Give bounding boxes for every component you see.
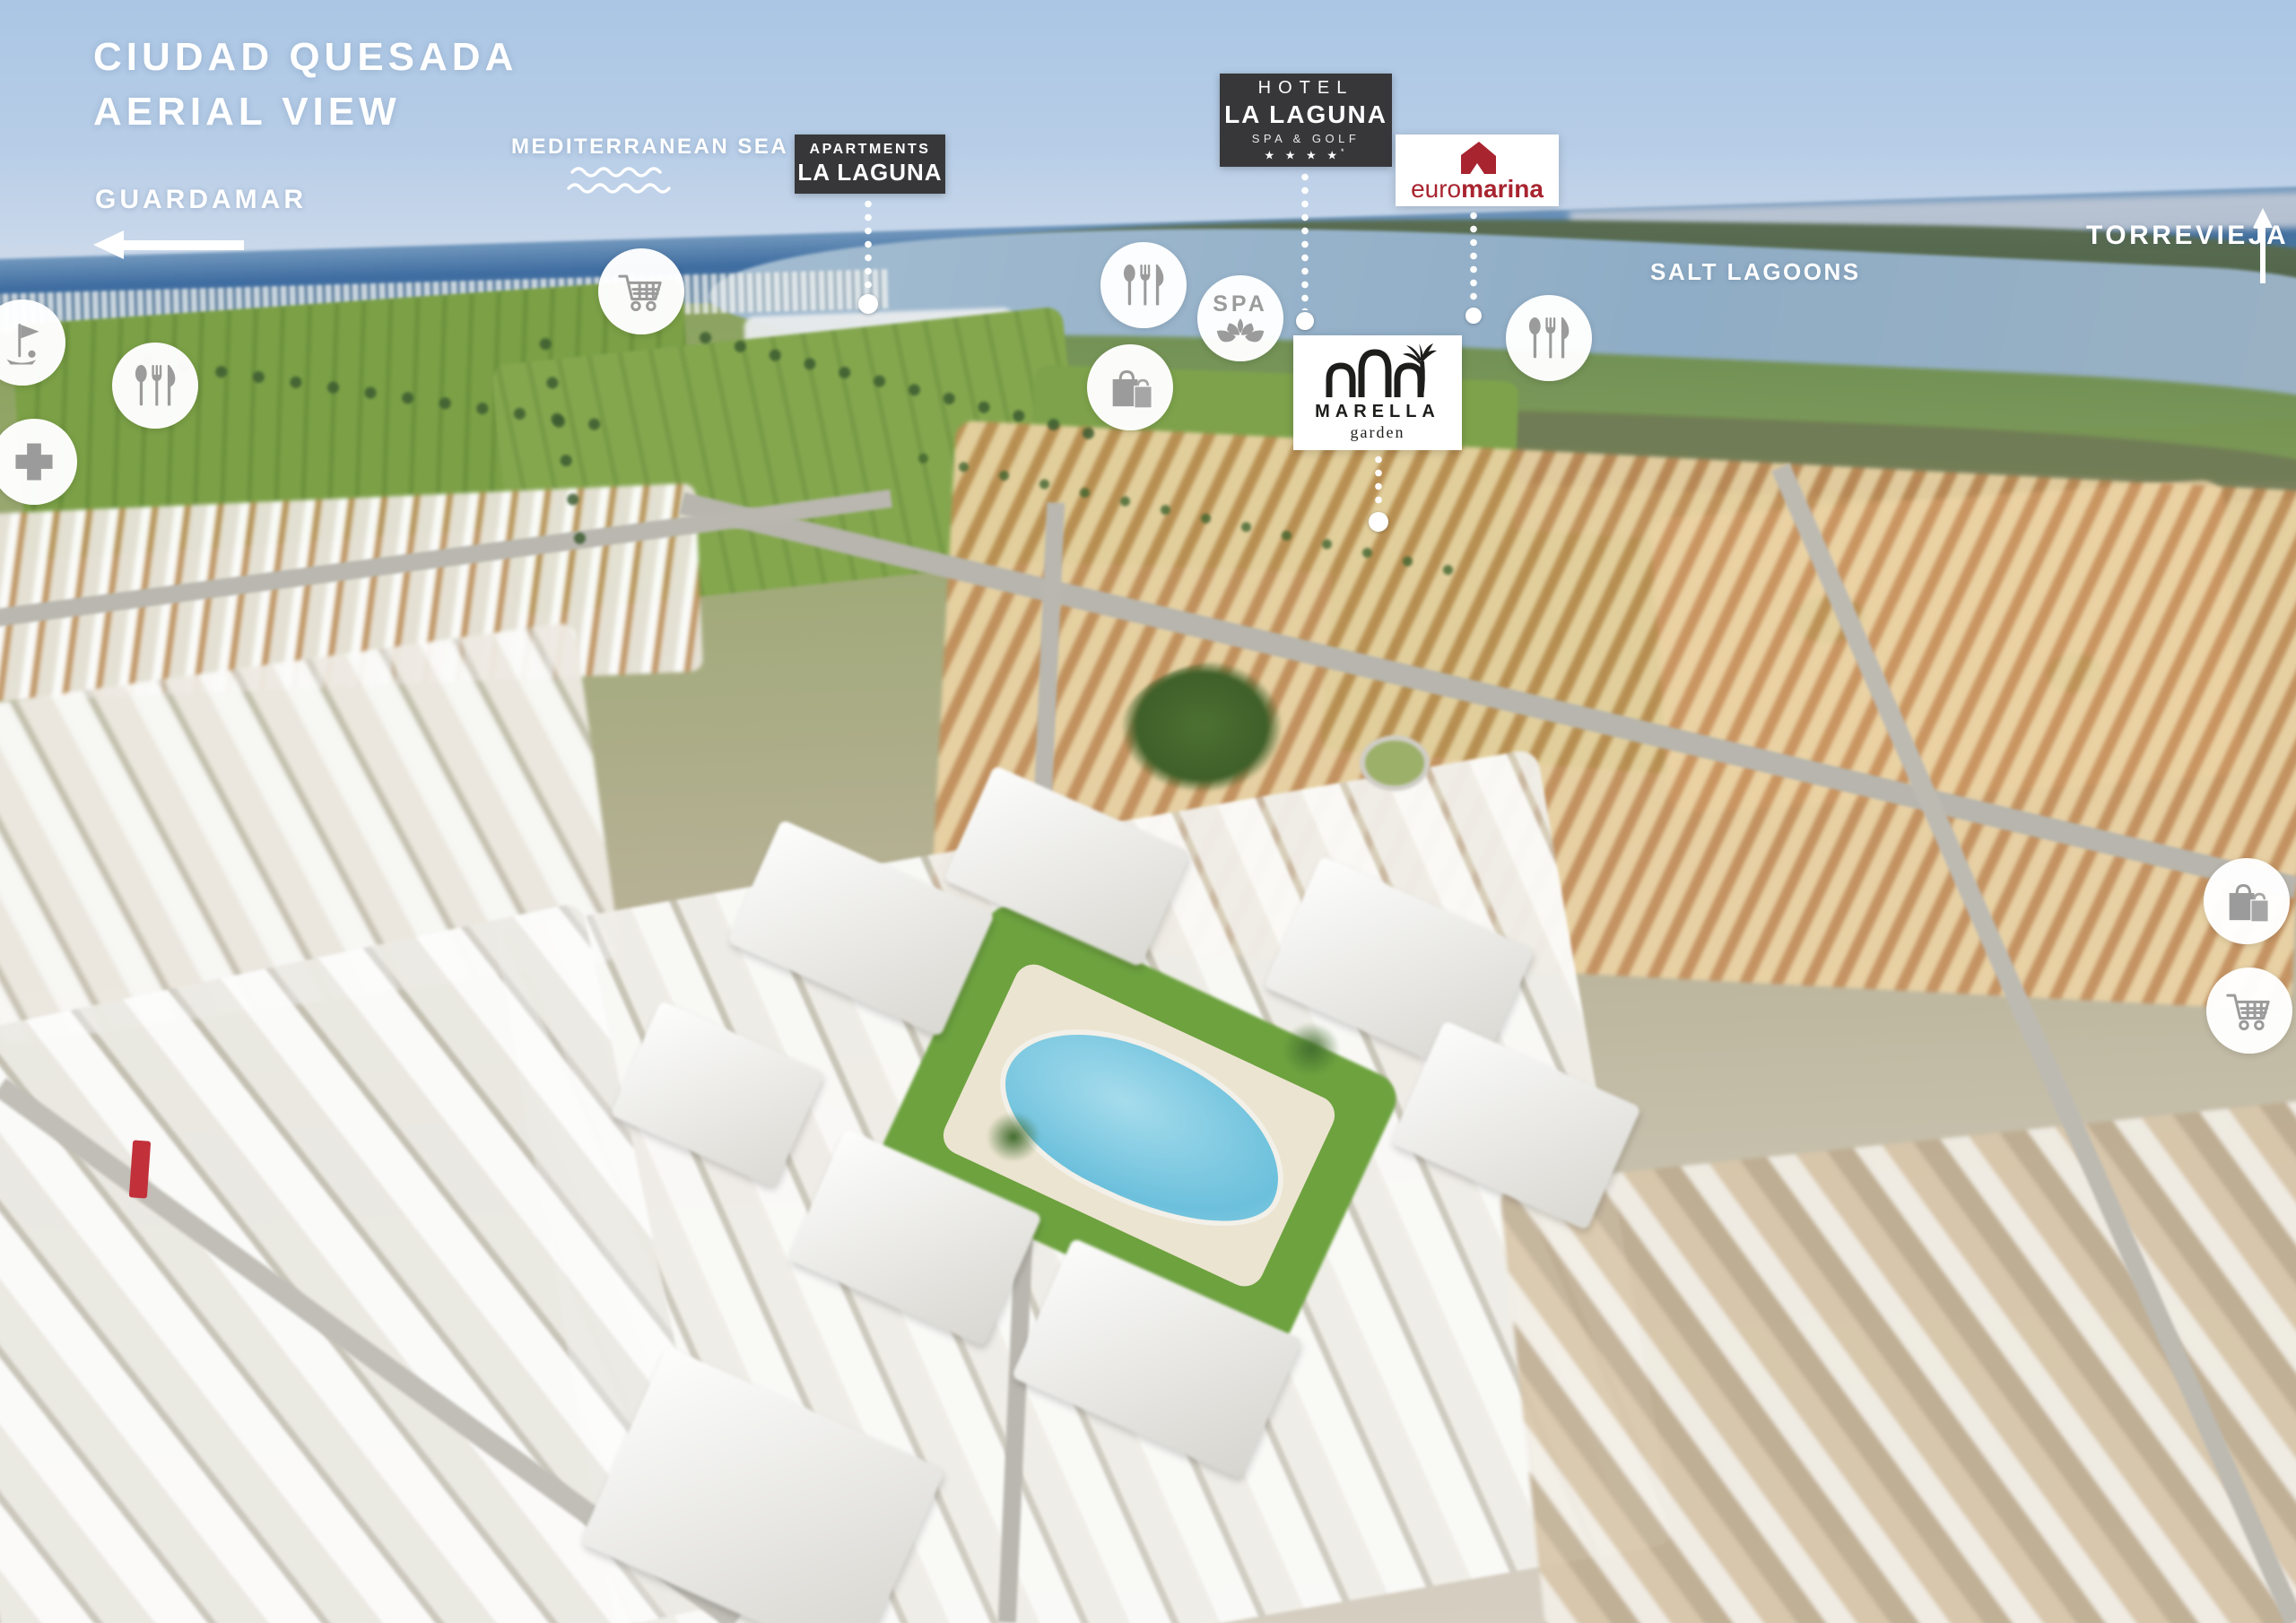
hotel-badge-line2: LA LAGUNA [1224,100,1387,129]
photo-pool-palms-2 [1283,1022,1340,1076]
page-title-line1: CIUDAD QUESADA [93,30,517,85]
apartments-location-dot [858,294,878,314]
lotus-icon [1215,318,1265,345]
marella-tagline: garden [1351,423,1405,442]
hotel-dotted-connector [1300,170,1309,310]
salt-lagoons-label: SALT LAGOONS [1650,258,1861,286]
shopping-bags-icon-east [2204,858,2290,944]
guardamar-arrowhead-icon [93,230,124,259]
apartments-badge-line2: LA LAGUNA [797,159,942,187]
shopping-bags-icon-center [1087,344,1173,430]
waves-icon [567,163,673,199]
mediterranean-sea-label: MEDITERRANEAN SEA [511,135,788,160]
shopping-cart-icon-west [598,248,684,334]
spa-icon-label: SPA [1213,291,1268,317]
hotel-stars-note: * [1341,147,1348,156]
photo-roundabout [1360,735,1430,791]
euromarina-wordmark: euromarina [1411,177,1544,202]
restaurant-icon-west [112,343,198,429]
apartments-la-laguna-badge: APARTMENTS LA LAGUNA [795,135,945,194]
marella-garden-logo: MARELLA garden [1293,335,1462,450]
apartments-dotted-connector [864,197,873,296]
page-title: CIUDAD QUESADA AERIAL VIEW [93,30,517,139]
euromarina-suffix: marina [1461,175,1544,203]
euromarina-dotted-connector [1469,209,1478,304]
page-title-line2: AERIAL VIEW [93,85,517,140]
marella-location-dot [1369,512,1388,532]
hotel-stars: ★ ★ ★ ★ [1265,148,1341,161]
hotel-badge-line3: SPA & GOLF [1252,132,1361,145]
shopping-cart-icon-east [2206,968,2292,1054]
spa-icon: SPA [1197,275,1283,361]
aerial-view-poster: CIUDAD QUESADA AERIAL VIEW GUARDAMAR MED… [0,0,2296,1623]
restaurant-icon-east [1506,295,1592,381]
marella-dotted-connector [1374,453,1383,510]
spa-icon-inner: SPA [1213,291,1268,345]
euromarina-logo: euromarina [1396,135,1559,206]
apartments-badge-line1: APARTMENTS [810,142,931,158]
hotel-location-dot [1296,312,1314,330]
marella-arches-palm-icon [1318,343,1437,399]
hotel-badge-line1: HOTEL [1258,78,1354,99]
photo-pool-palms [987,1112,1040,1162]
euromarina-location-dot [1465,308,1482,324]
guardamar-label: GUARDAMAR [95,185,307,215]
guardamar-arrow-icon [122,240,244,250]
marella-name: MARELLA [1315,402,1440,422]
euromarina-house-icon [1457,139,1498,175]
euromarina-prefix: euro [1411,175,1461,203]
torrevieja-arrow-icon [2260,226,2266,283]
hotel-badge-stars: ★ ★ ★ ★* [1265,147,1348,162]
hotel-la-laguna-badge: HOTEL LA LAGUNA SPA & GOLF ★ ★ ★ ★* [1220,74,1392,167]
restaurant-icon-center [1100,242,1187,328]
torrevieja-arrowhead-icon [2253,208,2273,228]
